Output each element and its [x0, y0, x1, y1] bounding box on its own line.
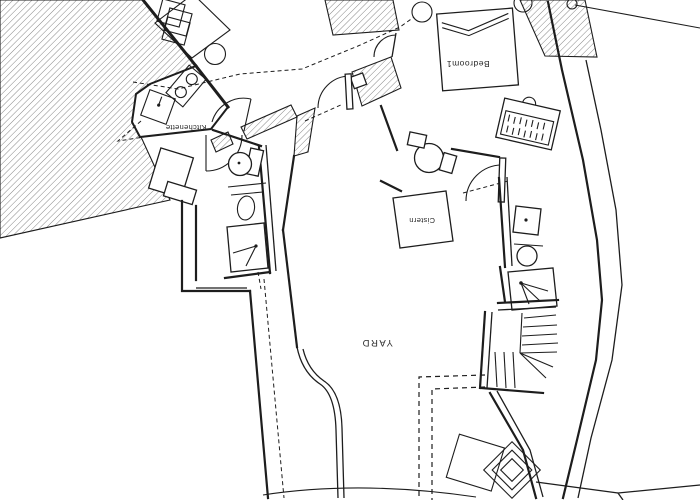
bottom-right-structure — [618, 485, 700, 500]
yard-curved-wall — [297, 347, 338, 498]
door-leaf — [345, 74, 353, 109]
bedroom-wall-hatch — [325, 0, 399, 35]
bathroom-strip — [213, 130, 276, 289]
shower-tray-right — [513, 206, 541, 235]
cistern-room: Cistern — [381, 106, 508, 248]
site-line — [575, 5, 700, 28]
hall-wall-hatch — [211, 57, 401, 230]
toilet — [229, 148, 264, 176]
yard-boundary-dashed — [432, 387, 485, 500]
kitchenette-label: Kitchenette — [166, 123, 207, 132]
plant-circle — [205, 44, 226, 65]
shower-tray-left — [227, 223, 268, 289]
stair-treads — [495, 313, 558, 388]
floor-plan-canvas: Kitchenette — [0, 0, 700, 500]
dresser — [496, 92, 562, 150]
plant-circle — [412, 2, 432, 22]
yard-boundary-dashed — [419, 375, 485, 500]
bed — [437, 8, 519, 91]
yard-label: YARD — [361, 337, 393, 348]
stairs — [480, 300, 558, 393]
path-edge-curve — [263, 488, 476, 497]
dining-chair — [407, 132, 426, 148]
cistern-label: Cistern — [409, 216, 435, 225]
corridor-dashed-edge — [264, 279, 284, 498]
site-wall-east — [520, 0, 700, 498]
service-rooms — [499, 177, 557, 310]
shower-spray — [508, 268, 557, 310]
wc — [514, 244, 543, 266]
spiral-stair-symbol — [484, 442, 541, 499]
corridor-walls — [182, 135, 284, 498]
dining-table-set — [407, 132, 456, 174]
floor-plan-drawing: Kitchenette — [0, 0, 700, 500]
site-line — [536, 482, 618, 493]
bedroom-label: Bedroom1 — [446, 59, 489, 69]
bath-sink — [231, 192, 263, 221]
door-swing-arc — [466, 165, 502, 201]
